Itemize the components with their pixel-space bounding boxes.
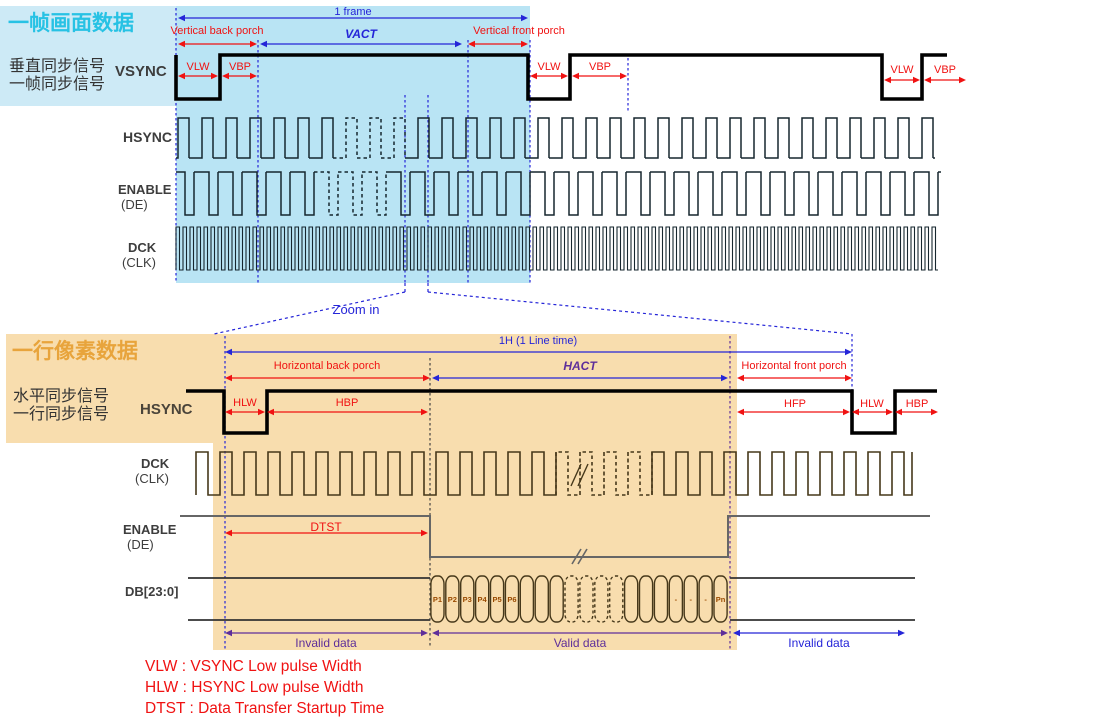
clk-signal-label-line: (CLK) [135,472,169,487]
db-data-cell [595,576,608,622]
legend-item-dtst: DTST : Data Transfer Startup Time [145,698,384,719]
zoom-in-label: Zoom in [333,303,380,318]
db-data-cell [535,576,548,622]
one-line-label: 1H (1 Line time) [499,335,577,347]
vbp-label-2: VBP [589,61,611,73]
legend-item-hlw: HLW : HSYNC Low pulse Width [145,677,384,698]
hact-label: HACT [563,360,596,373]
enable-signal-label-frame: ENABLE [118,183,171,198]
hsync-signal-label-line: HSYNC [140,402,193,419]
db-data-cell [654,576,667,622]
db-data-cell [565,576,578,622]
vlw-label-3: VLW [890,64,913,76]
waveform-canvas: P1P2P3P4P5P6---Pn [0,0,1106,726]
line-section-title: 一行像素数据 [12,340,138,364]
hbp-label-2: HBP [906,398,929,410]
db-data-cell [610,576,623,622]
clk-signal-label-frame: (CLK) [122,256,156,271]
line-side-label-1: 水平同步信号 [13,388,109,406]
one-frame-label: 1 frame [334,6,371,18]
db-cell-label: - [675,595,678,604]
lcd-timing-diagram: P1P2P3P4P5P6---Pn 一帧画面数据 垂直同步信号 一帧同步信号 V… [0,0,1106,726]
db-cell-label: - [704,595,707,604]
vsync-signal-label: VSYNC [115,64,167,81]
vlw-label-1: VLW [186,61,209,73]
dck-signal-label-line: DCK [141,457,169,472]
db-cell-label: P4 [478,595,488,604]
vertical-front-porch-label: Vertical front porch [473,25,565,37]
db-cell-label: P6 [507,595,516,604]
db-cell-label: P2 [448,595,457,604]
invalid-data-label-left: Invalid data [295,637,356,650]
hlw-label-1: HLW [233,397,257,409]
legend: VLW : VSYNC Low pulse Width HLW : HSYNC … [145,656,384,719]
frame-side-label-2: 一帧同步信号 [9,76,105,94]
hbp-label-1: HBP [336,397,359,409]
db-bus-label: DB[23:0] [125,585,178,600]
vbp-label-3: VBP [934,64,956,76]
frame-side-label-1: 垂直同步信号 [9,58,105,76]
db-cell-label: P5 [492,595,501,604]
frame-section-title: 一帧画面数据 [8,12,134,36]
vlw-label-2: VLW [537,61,560,73]
horizontal-front-porch-label: Horizontal front porch [741,360,846,372]
db-data-cell [580,576,593,622]
line-side-label-2: 一行同步信号 [13,406,109,424]
enable-signal-label-line: ENABLE [123,523,176,538]
invalid-data-label-right: Invalid data [788,637,849,650]
dck-signal-label-frame: DCK [128,241,156,256]
db-cell-label: P3 [463,595,472,604]
db-data-cell [625,576,638,622]
valid-data-label: Valid data [554,637,606,650]
db-data-cell [640,576,653,622]
horizontal-back-porch-label: Horizontal back porch [274,360,380,372]
vbp-label-1: VBP [229,61,251,73]
db-cell-label: Pn [716,595,726,604]
dtst-label: DTST [310,521,341,534]
de-signal-label-frame: (DE) [121,198,148,213]
hlw-label-2: HLW [860,398,884,410]
db-cell-label: - [690,595,693,604]
db-data-cell [520,576,533,622]
hfp-label: HFP [784,398,806,410]
vact-label: VACT [345,28,377,41]
de-signal-label-line: (DE) [127,538,154,553]
db-cell-label: P1 [433,595,442,604]
vertical-back-porch-label: Vertical back porch [171,25,264,37]
db-data-cell [550,576,563,622]
legend-item-vlw: VLW : VSYNC Low pulse Width [145,656,384,677]
hsync-signal-label-frame: HSYNC [123,130,172,146]
